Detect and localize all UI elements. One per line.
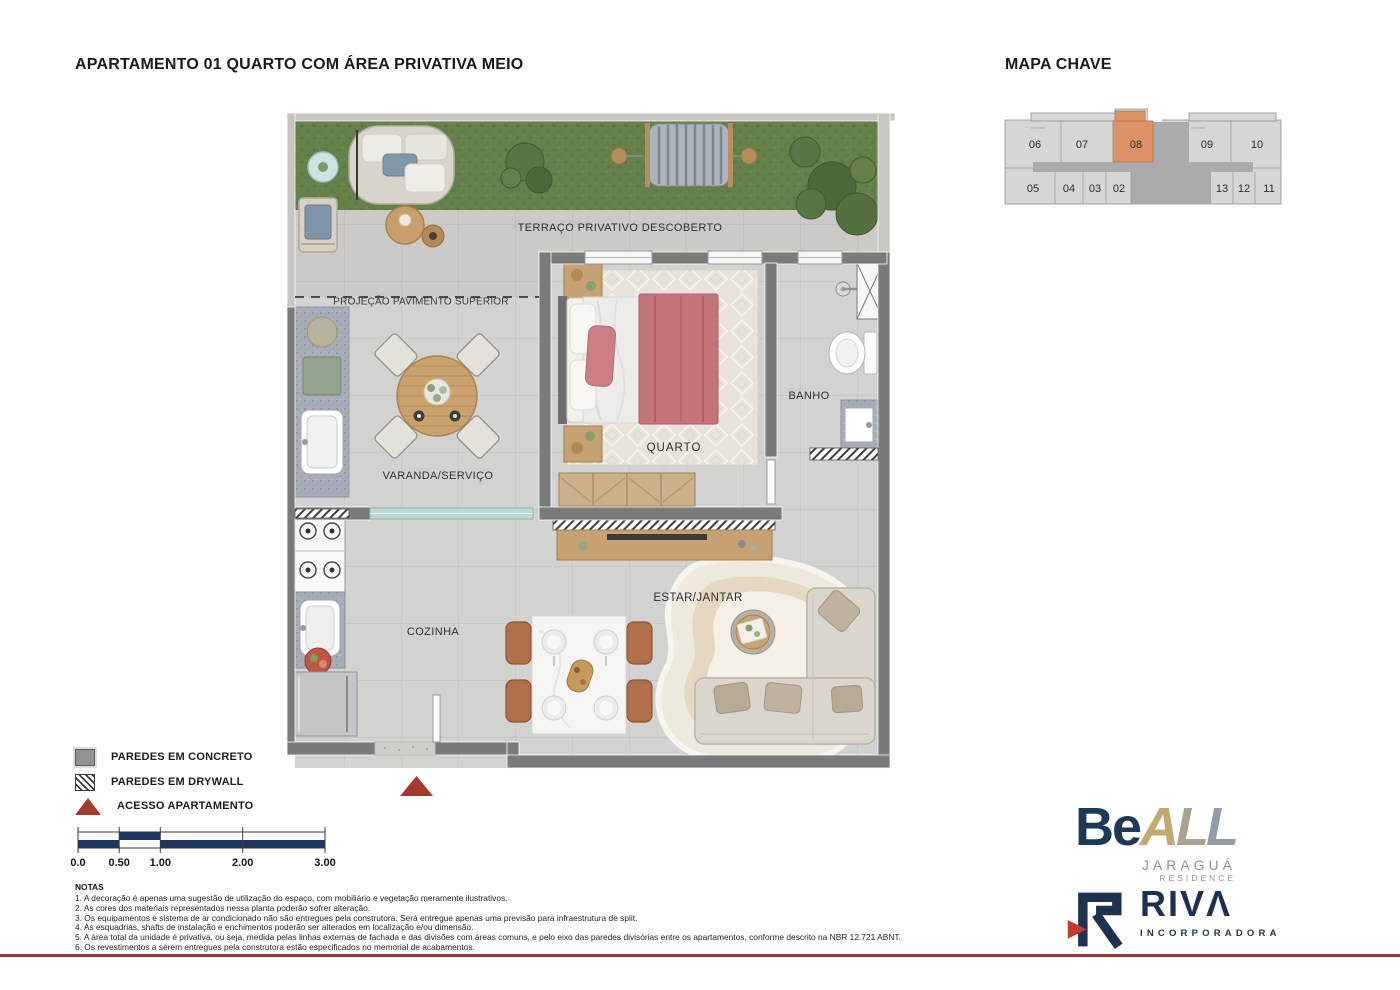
beall-logo-a: A <box>1140 797 1176 857</box>
stove <box>295 515 345 592</box>
legend-item-access: ACESSO APARTAMENTO <box>75 796 253 816</box>
scale-tick-0: 0.0 <box>70 857 85 869</box>
beall-logo-be: Be <box>1075 797 1140 857</box>
key-map-unit-11: 11 <box>1263 183 1274 195</box>
beall-logo-l1: L <box>1176 797 1206 857</box>
riva-logo: RIVΛ INCORPORADORA <box>1064 886 1281 952</box>
nightstand <box>564 264 602 298</box>
nightstand <box>564 426 602 462</box>
key-map-unit-04: 04 <box>1063 183 1075 195</box>
fridge <box>295 672 357 736</box>
kitchen-sink <box>300 600 340 656</box>
floor-plan <box>287 110 895 810</box>
key-map-unit-07: 07 <box>1076 139 1088 151</box>
legend-drywall-label: PAREDES EM DRYWALL <box>111 776 244 788</box>
legend-access-label: ACESSO APARTAMENTO <box>117 800 253 812</box>
key-map-unit-06: 06 <box>1029 139 1041 151</box>
coffee-table <box>731 610 775 654</box>
beall-logo-residence: RESIDENCE <box>1056 874 1236 883</box>
key-map-unit-03: 03 <box>1089 183 1101 195</box>
wardrobe <box>559 473 695 506</box>
legend-item-concrete: PAREDES EM CONCRETO <box>75 747 253 767</box>
label-estar: ESTAR/JANTAR <box>653 592 742 604</box>
bottom-rule <box>0 954 1400 957</box>
entry-door <box>433 695 440 742</box>
key-map-unit-09: 09 <box>1201 139 1213 151</box>
key-map-unit-13: 13 <box>1216 183 1228 195</box>
label-cozinha: COZINHA <box>407 626 459 638</box>
bed <box>558 294 718 424</box>
key-map: 06 07 08 09 10 05 04 03 02 13 12 11 <box>1003 106 1283 214</box>
key-map-unit-05: 05 <box>1027 183 1039 195</box>
label-varanda: VARANDA/SERVIÇO <box>383 470 494 482</box>
fruit-bowl <box>305 648 331 674</box>
key-map-unit-12: 12 <box>1238 183 1250 195</box>
scale-bar: 0.0 0.50 1.00 2.00 3.00 <box>64 824 354 870</box>
scale-tick-1: 1.00 <box>150 857 171 869</box>
key-map-title: MAPA CHAVE <box>1005 56 1112 74</box>
key-map-unit-02: 02 <box>1113 183 1125 195</box>
notes-block: NOTAS 1. A decoração é apenas uma sugest… <box>75 882 905 953</box>
riva-logo-mark <box>1064 886 1130 952</box>
riva-name: RIVΛ <box>1140 886 1281 922</box>
lounge-chair <box>299 198 337 252</box>
access-triangle <box>400 776 433 796</box>
drywall-swatch-icon <box>75 774 95 791</box>
concrete-swatch-icon <box>75 749 95 766</box>
beall-logo: BeALL JARAGUÁ RESIDENCE <box>1056 800 1236 883</box>
key-map-building: 06 07 08 09 10 05 04 03 02 13 12 11 <box>1005 108 1281 204</box>
beall-logo-jaragua: JARAGUÁ <box>1056 858 1236 872</box>
legend-item-drywall: PAREDES EM DRYWALL <box>75 772 244 792</box>
access-triangle-icon <box>75 798 101 815</box>
floor-plan-svg <box>287 110 895 810</box>
key-map-unit-10: 10 <box>1251 139 1263 151</box>
legend-concrete-label: PAREDES EM CONCRETO <box>111 751 253 763</box>
label-quarto: QUARTO <box>647 442 702 454</box>
laundry-basket <box>303 357 341 395</box>
key-map-unit-08: 08 <box>1130 139 1142 151</box>
bathroom-vanity <box>841 400 878 452</box>
label-banho: BANHO <box>788 390 829 402</box>
riva-incorporadora: INCORPORADORA <box>1140 928 1281 939</box>
daybed <box>349 126 454 204</box>
toilet <box>829 332 877 374</box>
scale-bar-svg: 0.0 0.50 1.00 2.00 3.00 <box>64 824 354 870</box>
label-projecao: PROJEÇÃO PAVIMENTO SUPERIOR <box>333 297 508 308</box>
tv-sideboard <box>553 520 775 560</box>
notes-header: NOTAS <box>75 882 905 892</box>
beall-logo-l2: L <box>1206 797 1236 857</box>
page-title: APARTAMENTO 01 QUARTO COM ÁREA PRIVATIVA… <box>75 56 523 74</box>
riva-logo-text: RIVΛ INCORPORADORA <box>1140 886 1281 939</box>
label-terraco: TERRAÇO PRIVATIVO DESCOBERTO <box>518 222 723 234</box>
quarto-door <box>767 460 775 504</box>
scale-tick-3: 3.00 <box>314 857 335 869</box>
floor-plan-sheet: APARTAMENTO 01 QUARTO COM ÁREA PRIVATIVA… <box>0 0 1400 990</box>
scale-tick-2: 2.00 <box>232 857 253 869</box>
scale-tick-05: 0.50 <box>108 857 129 869</box>
key-map-svg: 06 07 08 09 10 05 04 03 02 13 12 11 <box>1003 106 1283 214</box>
note-line: 6. Os revestimentos a serem entregues pe… <box>75 943 905 953</box>
